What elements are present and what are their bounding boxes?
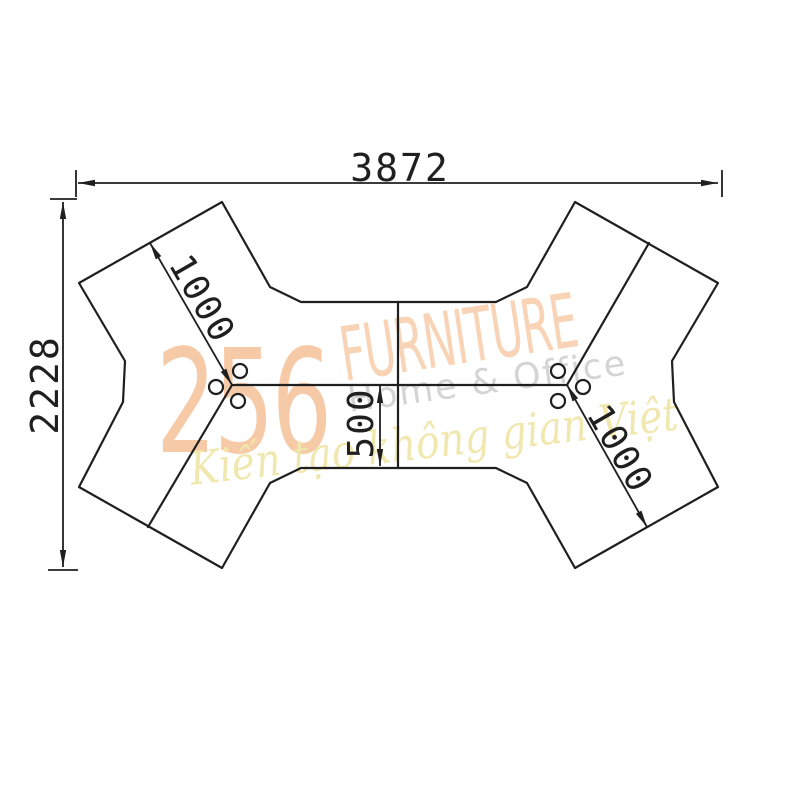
- divider-left-wing: [148, 385, 232, 527]
- dim-text-center: 500: [341, 387, 382, 458]
- dim-text-total-width: 3872: [350, 146, 450, 190]
- grommet-left-bottom: [231, 394, 245, 408]
- grommet-right-east: [576, 380, 590, 394]
- grommet-left-top: [233, 364, 247, 378]
- desk-cluster-drawing: 3872 2228 500 1000 1000: [0, 0, 800, 800]
- furniture-dimension-drawing: 256 FURNITURE Home & Office Kiến tạo khô…: [0, 0, 800, 800]
- grommet-left-west: [209, 380, 223, 394]
- dim-text-left-wing: 1000: [160, 248, 243, 351]
- grommet-right-bottom: [551, 394, 565, 408]
- dim-text-right-wing: 1000: [578, 398, 661, 501]
- grommet-right-top: [551, 364, 565, 378]
- divider-right-wing: [567, 243, 649, 385]
- dim-text-total-height: 2228: [23, 335, 67, 435]
